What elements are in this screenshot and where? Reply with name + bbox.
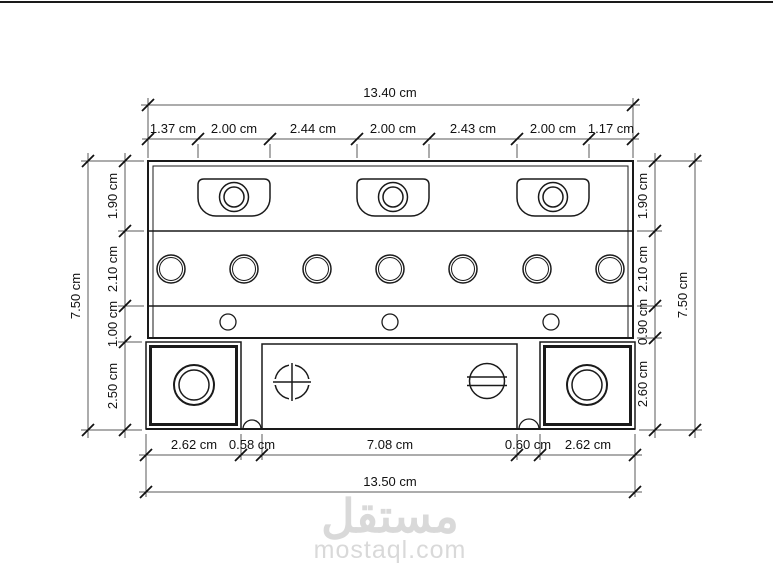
terminal-pocket xyxy=(357,179,429,216)
crosshead-mark xyxy=(268,358,316,406)
terminal-ring-inner xyxy=(383,187,403,207)
watermark-logo-text: مستقل xyxy=(321,490,459,542)
dim-label-bottom-overall: 13.50 cm xyxy=(363,474,416,489)
terminal-pockets xyxy=(198,179,589,216)
right-box-outer xyxy=(540,342,635,429)
dim-label: 0.90 cm xyxy=(635,299,650,345)
terminal-ring-inner xyxy=(543,187,563,207)
small-hole xyxy=(543,314,559,330)
dim-label-right-overall: 7.50 cm xyxy=(675,272,690,318)
right-corner-box xyxy=(540,342,635,429)
vent-circle xyxy=(449,255,477,283)
dim-right-overall: 7.50 cm xyxy=(675,153,701,438)
slotted-circle xyxy=(470,364,505,399)
watermark-site-text: mostaql.com xyxy=(314,536,467,564)
vent-circle-inner xyxy=(526,258,549,281)
dim-label: 1.00 cm xyxy=(105,301,120,347)
drawing-page: 13.40 cm 1.37 cm 2.00 cm 2.44 cm 2.00 cm… xyxy=(0,0,773,573)
technical-drawing-canvas: 13.40 cm 1.37 cm 2.00 cm 2.44 cm 2.00 cm… xyxy=(0,0,773,573)
right-box-inner xyxy=(545,347,631,425)
middle-plate xyxy=(262,344,517,429)
dim-label: 1.37 cm xyxy=(150,121,196,136)
small-hole xyxy=(382,314,398,330)
small-hole xyxy=(220,314,236,330)
dim-label: 2.60 cm xyxy=(635,361,650,407)
left-box-circle-inner xyxy=(179,370,209,400)
dim-label: 0.58 cm xyxy=(229,437,275,452)
vent-circles xyxy=(157,255,624,283)
dim-label-top-overall: 13.40 cm xyxy=(363,85,416,100)
dim-top-segments: 1.37 cm 2.00 cm 2.44 cm 2.00 cm 2.43 cm … xyxy=(142,121,639,158)
right-box-circle-outer xyxy=(567,365,607,405)
vent-circle xyxy=(157,255,185,283)
vent-circle-inner xyxy=(306,258,329,281)
terminal-pocket xyxy=(198,179,270,216)
dim-label: 2.44 cm xyxy=(290,121,336,136)
terminal-pocket xyxy=(517,179,589,216)
vent-circle xyxy=(230,255,258,283)
right-box-circle-inner xyxy=(572,370,602,400)
watermark: مستقل mostaql.com xyxy=(314,490,467,564)
vent-circle-inner xyxy=(599,258,622,281)
vent-circle xyxy=(376,255,404,283)
dim-label: 2.00 cm xyxy=(370,121,416,136)
dim-label: 2.50 cm xyxy=(105,363,120,409)
vent-circle-inner xyxy=(379,258,402,281)
left-groove-dome xyxy=(243,420,261,429)
vent-circle-inner xyxy=(452,258,475,281)
dim-label: 7.08 cm xyxy=(367,437,413,452)
dim-label: 1.90 cm xyxy=(105,173,120,219)
slotted-screw-mark xyxy=(467,364,507,399)
dim-label: 0.60 cm xyxy=(505,437,551,452)
left-corner-box xyxy=(146,342,241,429)
dim-label: 2.00 cm xyxy=(530,121,576,136)
left-box-circle-outer xyxy=(174,365,214,405)
part-geometry xyxy=(146,161,635,429)
dim-label: 1.17 cm xyxy=(588,121,634,136)
dim-label: 2.62 cm xyxy=(565,437,611,452)
terminal-ring-inner xyxy=(224,187,244,207)
dim-label: 1.90 cm xyxy=(635,173,650,219)
dim-left-segments: 1.90 cm 2.10 cm 1.00 cm 2.50 cm xyxy=(105,153,144,438)
dim-label-left-overall: 7.50 cm xyxy=(68,273,83,319)
vent-circle xyxy=(523,255,551,283)
left-box-inner xyxy=(151,347,237,425)
vent-circle-inner xyxy=(233,258,256,281)
small-holes xyxy=(220,314,559,330)
upper-body-inner-wall xyxy=(153,166,628,338)
dim-label: 2.62 cm xyxy=(171,437,217,452)
dim-label: 2.10 cm xyxy=(105,246,120,292)
dim-right-segments: 1.90 cm 2.10 cm 0.90 cm 2.60 cm xyxy=(635,153,702,438)
left-box-outer xyxy=(146,342,241,429)
vent-circle xyxy=(303,255,331,283)
right-groove-dome xyxy=(519,419,539,429)
vent-circle-inner xyxy=(160,258,183,281)
dim-label: 2.00 cm xyxy=(211,121,257,136)
dim-label: 2.43 cm xyxy=(450,121,496,136)
vent-circle xyxy=(596,255,624,283)
dim-label: 2.10 cm xyxy=(635,246,650,292)
